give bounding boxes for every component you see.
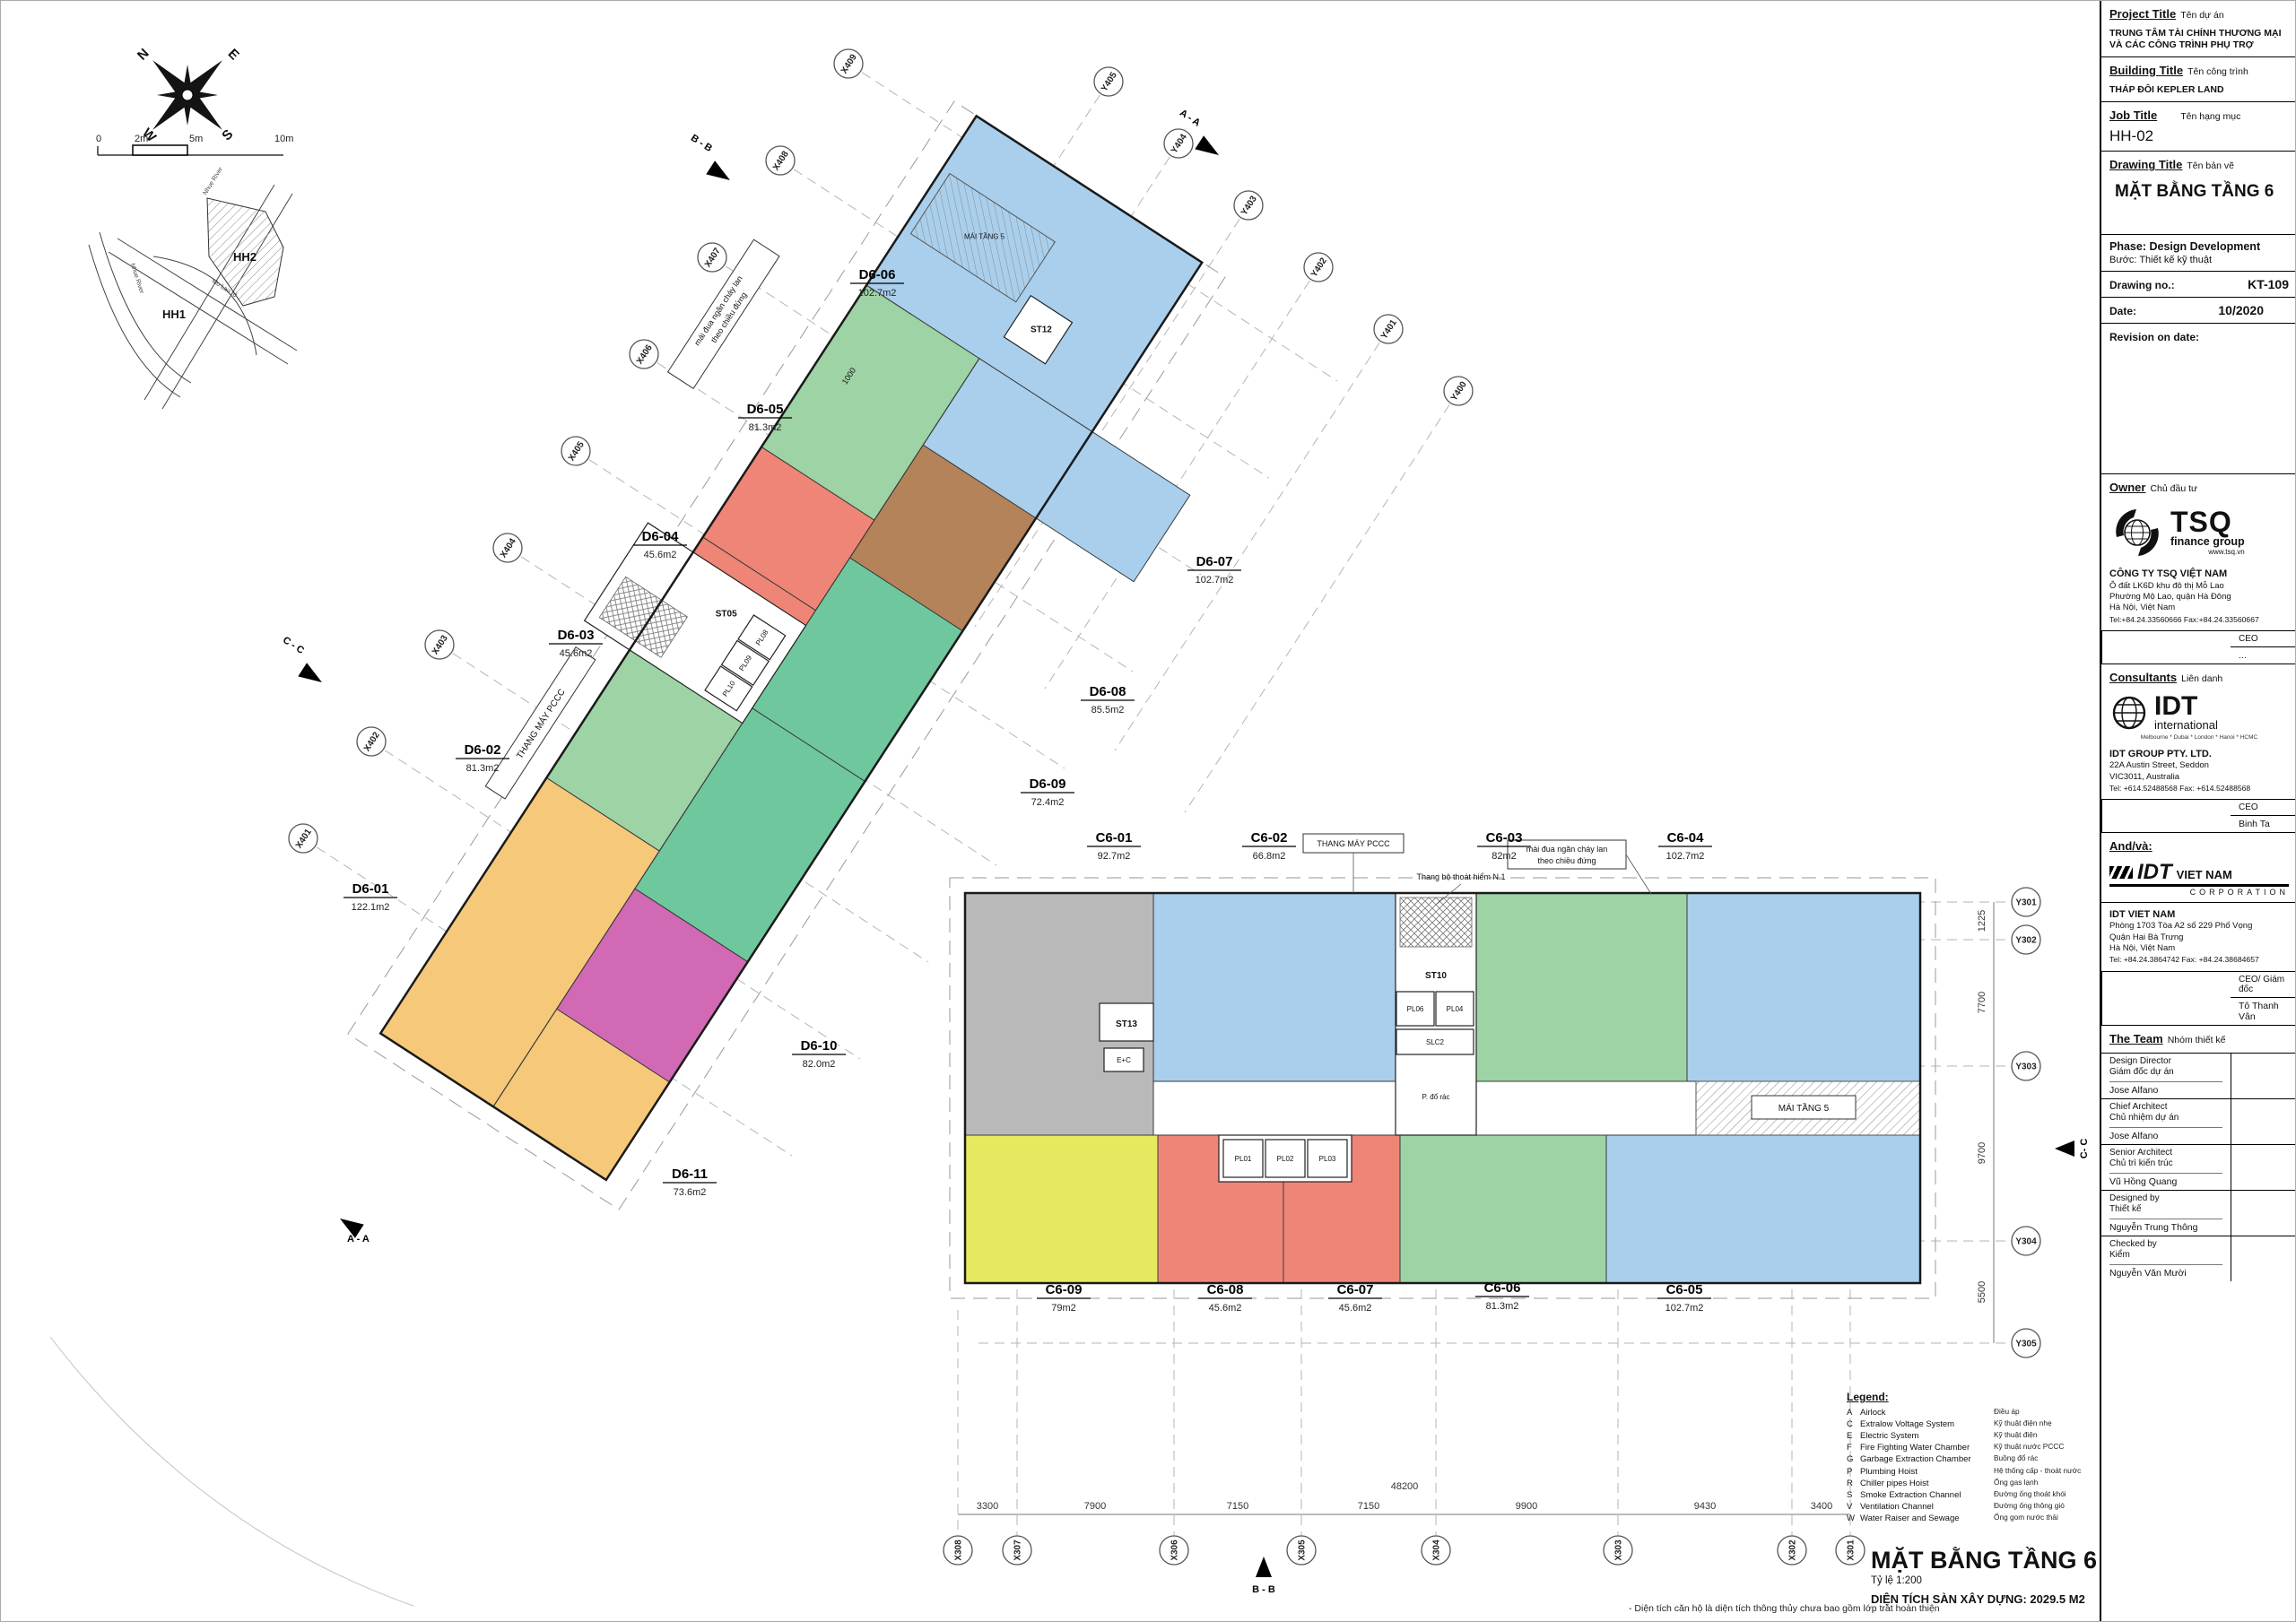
legend-vn: Hệ thống cấp - thoát nước — [1994, 1466, 2094, 1478]
scale-10m: 10m — [274, 134, 293, 144]
legend-vn: Buồng đổ rác — [1994, 1453, 2094, 1465]
grid-bubble-x307: X307 — [1003, 1536, 1031, 1565]
eave-note-c6-line2: theo chiều đứng — [1537, 856, 1596, 865]
unit-c6-05-region — [1606, 1135, 1920, 1283]
lift-label-pl04: PL04 — [1447, 1005, 1464, 1013]
grid-bubble-x306: X306 — [1160, 1536, 1188, 1565]
consultants-label-vn: Liên danh — [2181, 673, 2222, 684]
idt-vietnam-bars-icon — [2109, 866, 2133, 879]
owner-label: Owner — [2109, 481, 2145, 494]
svg-text:C6-09: C6-09 — [1046, 1282, 1083, 1297]
unit-label-c6-08: C6-0845.6m2 — [1198, 1282, 1252, 1314]
legend-row: GGarbage Extraction ChamberBuồng đổ rác — [1847, 1453, 2094, 1465]
lift-label-slc2: SLC2 — [1426, 1038, 1445, 1046]
job-title-label: Job Title — [2109, 108, 2157, 122]
team-role-en: Designed by — [2109, 1193, 2160, 1203]
grid-bubble-y400: Y400 — [1444, 377, 1473, 405]
svg-text:C- C: C- C — [2079, 1139, 2090, 1159]
team-role-vn: Chủ nhiệm dự án — [2109, 1113, 2179, 1123]
scale-0: 0 — [96, 134, 101, 144]
legend-key: W — [1847, 1513, 1860, 1524]
legend-vn: Ống gas lạnh — [1994, 1478, 2094, 1489]
unit-c6-03-region — [1476, 893, 1687, 1081]
river-label-1: Nhue River — [129, 263, 145, 295]
consultants-section: ConsultantsLiên danh IDT international M… — [2101, 664, 2296, 833]
drawing-no-value: KT-109 — [2248, 277, 2289, 291]
idt-vietnam-ceo-value: Tô Thanh Vân — [2231, 998, 2296, 1025]
building-title-label: Building Title — [2109, 64, 2183, 77]
project-title-label-vn: Tên dự án — [2180, 10, 2223, 21]
compass-n: N — [135, 46, 152, 64]
svg-text:D6-02: D6-02 — [465, 742, 501, 758]
idt-cities: Melbourne * Dubai * London * Hanoi * HCM… — [2109, 734, 2289, 741]
grid-bubble-x301: X301 — [1836, 1536, 1865, 1565]
project-title-section: Project TitleTên dự án TRUNG TÂM TÀI CHÍ… — [2101, 1, 2296, 57]
unit-label-d6-09: D6-0972.4m2 — [1021, 776, 1074, 808]
svg-text:102.7m2: 102.7m2 — [1196, 575, 1234, 585]
dim-bottom-2: 7900 — [1084, 1501, 1106, 1512]
svg-text:A - A: A - A — [347, 1234, 370, 1245]
team-role-en: Checked by — [2109, 1239, 2157, 1249]
revision-section: Revision on date: — [2101, 324, 2296, 474]
team-role-vn: Thiết kế — [2109, 1204, 2142, 1214]
team-role-vn: Giám đốc dự án — [2109, 1067, 2174, 1077]
legend-row: PPlumbing HoistHệ thống cấp - thoát nước — [1847, 1466, 2094, 1478]
floor-plan-svg: ST05 PL10 PL09 PL08 THANG MÁY PCCC ST12 … — [1, 1, 2100, 1622]
team-name: Jose Alfano — [2109, 1082, 2222, 1096]
location-map: HH2 HH1 Nhue River Nhue River Mo Lao rd — [89, 166, 297, 409]
stair-st10-hatch — [1400, 898, 1472, 947]
building-name: THÁP ĐÔI KEPLER LAND — [2109, 84, 2289, 96]
team-role-en: Senior Architect — [2109, 1148, 2172, 1158]
svg-text:C6-02: C6-02 — [1251, 830, 1288, 846]
idt-logo-sub: international — [2154, 718, 2218, 732]
grid-bubble-x406: X406 — [630, 340, 658, 369]
team-label-vn: Nhóm thiết kế — [2168, 1035, 2226, 1045]
owner-addr3: Hà Nội, Việt Nam — [2109, 603, 2289, 613]
team-role-en: Design Director — [2109, 1056, 2171, 1066]
svg-text:D6-05: D6-05 — [747, 402, 784, 417]
plan-canvas: ST05 PL10 PL09 PL08 THANG MÁY PCCC ST12 … — [1, 1, 2100, 1622]
grid-bubble-y405: Y405 — [1094, 67, 1123, 96]
dim-right-1: 1225 — [1977, 910, 1987, 932]
svg-text:D6-11: D6-11 — [672, 1167, 708, 1182]
legend: Legend: AAirlockĐiều áp CExtralow Voltag… — [1847, 1391, 2094, 1524]
svg-text:Y302: Y302 — [2015, 936, 2037, 946]
legend-vn: Kỹ thuật điện — [1994, 1430, 2094, 1442]
roof-label-c6: MÁI TẦNG 5 — [1779, 1102, 1830, 1114]
drawing-title-label-vn: Tên bản vẽ — [2187, 160, 2234, 171]
unit-label-c6-06: C6-0681.3m2 — [1475, 1280, 1529, 1312]
svg-text:D6-01: D6-01 — [352, 881, 389, 897]
legend-row: RChiller pipes HoistỐng gas lạnh — [1847, 1478, 2094, 1489]
svg-text:81.3m2: 81.3m2 — [1486, 1301, 1519, 1312]
consultants-addr1: 22A Austin Street, Seddon — [2109, 760, 2289, 771]
building-title-section: Building TitleTên công trình THÁP ĐÔI KE… — [2101, 57, 2296, 102]
dim-bottom-4: 7150 — [1358, 1501, 1379, 1512]
grid-bubble-y302: Y302 — [2012, 925, 2040, 954]
grid-bubble-x407: X407 — [698, 243, 726, 272]
idt-globe-icon — [2109, 693, 2149, 733]
legend-vn: Điều áp — [1994, 1407, 2094, 1418]
svg-text:82.0m2: 82.0m2 — [803, 1059, 836, 1070]
tsq-logo: TSQ finance group www.tsq.vn — [2109, 505, 2289, 560]
legend-row: CExtralow Voltage SystemKỹ thuật điện nh… — [1847, 1418, 2094, 1430]
hh2-label: HH2 — [233, 250, 257, 264]
svg-text:79m2: 79m2 — [1051, 1303, 1076, 1314]
tsq-logo-web: www.tsq.vn — [2170, 548, 2245, 556]
drawing-no-label: Drawing no.: — [2109, 279, 2175, 291]
svg-text:B - B: B - B — [689, 133, 714, 154]
dim-bottom-7: 3400 — [1811, 1501, 1832, 1512]
svg-text:X301: X301 — [1847, 1540, 1857, 1561]
consultants-label: Consultants — [2109, 671, 2177, 684]
dim-bottom-total: 48200 — [1391, 1481, 1419, 1492]
team-name: Nguyễn Trung Thông — [2109, 1219, 2222, 1233]
building-title-label-vn: Tên công trình — [2187, 66, 2248, 77]
grid-bubble-x401: X401 — [289, 824, 317, 853]
idt-vietnam-addr2: Quận Hai Bà Trưng — [2109, 932, 2289, 943]
grid-bubble-y301: Y301 — [2012, 888, 2040, 916]
svg-text:72.4m2: 72.4m2 — [1031, 797, 1065, 808]
eave-note-c6-line1: mái đua ngăn cháy lan — [1526, 845, 1608, 854]
team-role-en: Chief Architect — [2109, 1102, 2167, 1112]
owner-ceo-value: ... — [2231, 647, 2296, 664]
project-name-line1: TRUNG TÂM TÀI CHÍNH THƯƠNG MẠI — [2109, 28, 2289, 39]
legend-key: P — [1847, 1466, 1860, 1478]
owner-label-vn: Chủ đầu tư — [2150, 483, 2197, 494]
grid-bubble-x405: X405 — [561, 437, 590, 465]
consultants-ceo-value: Binh Ta — [2231, 816, 2296, 832]
unit-label-d6-08: D6-0885.5m2 — [1081, 684, 1135, 716]
scale-5m: 5m — [189, 134, 203, 144]
phase-label: Phase: Design Development — [2109, 240, 2289, 253]
team-role-vn: Chủ trì kiến trúc — [2109, 1158, 2173, 1168]
legend-vn: Ống gom nước thải — [1994, 1513, 2094, 1524]
svg-text:102.7m2: 102.7m2 — [1665, 1303, 1704, 1314]
core-label-st10: ST10 — [1425, 971, 1447, 981]
grid-bubble-y303: Y303 — [2012, 1052, 2040, 1080]
drawing-title-label: Drawing Title — [2109, 158, 2182, 171]
tsq-logo-sub: finance group — [2170, 535, 2245, 548]
grid-bubble-y402: Y402 — [1304, 253, 1333, 282]
owner-ceo-label: CEO — [2231, 631, 2296, 647]
consultants-ceo-table: CEO Binh Ta — [2101, 799, 2296, 832]
grid-bubble-x404: X404 — [493, 533, 522, 562]
footer-note: - Diện tích căn hộ là diện tích thông th… — [1629, 1603, 1940, 1614]
svg-text:81.3m2: 81.3m2 — [466, 763, 500, 774]
grid-bubble-y401: Y401 — [1374, 315, 1403, 343]
river-label-2: Nhue River — [202, 166, 224, 196]
legend-en: Ventilation Channel — [1860, 1501, 1994, 1513]
idt-vietnam-addr3: Hà Nội, Việt Nam — [2109, 943, 2289, 954]
svg-text:Y303: Y303 — [2015, 1063, 2037, 1072]
team-name: Nguyễn Văn Mười — [2109, 1265, 2222, 1279]
phase-label-vn: Bước: Thiết kế kỹ thuật — [2109, 255, 2289, 265]
legend-en: Airlock — [1860, 1407, 1994, 1418]
owner-section: OwnerChủ đầu tư TSQ finance group www.ts… — [2101, 474, 2296, 664]
c6-wing: ST10 PL06 PL04 SLC2 P. đổ rác ST13 E+C P… — [965, 893, 1920, 1283]
svg-text:102.7m2: 102.7m2 — [1666, 851, 1705, 862]
lift-label-pl06: PL06 — [1407, 1005, 1424, 1013]
dim-right-2: 7700 — [1977, 992, 1987, 1013]
team-role-vn: Kiểm — [2109, 1250, 2130, 1260]
section-marker-c-right: C- C — [2055, 1139, 2090, 1159]
idt-vietnam-corp: CORPORATION — [2109, 888, 2289, 897]
svg-text:D6-03: D6-03 — [558, 628, 595, 643]
svg-text:X305: X305 — [1298, 1540, 1308, 1561]
svg-text:D6-07: D6-07 — [1196, 554, 1233, 569]
consultants-addr2: VIC3011, Australia — [2109, 772, 2289, 783]
legend-en: Smoke Extraction Channel — [1860, 1489, 1994, 1501]
svg-text:C6-08: C6-08 — [1207, 1282, 1244, 1297]
drawing-sheet: ST05 PL10 PL09 PL08 THANG MÁY PCCC ST12 … — [0, 0, 2296, 1622]
svg-text:73.6m2: 73.6m2 — [674, 1187, 707, 1198]
andva-label: And/và: — [2109, 839, 2152, 853]
date-section: Date: 10/2020 — [2101, 298, 2296, 324]
team-signature-cell — [2231, 1236, 2296, 1281]
compass-e: E — [225, 46, 242, 63]
unit-label-c6-01: C6-0192.7m2 — [1087, 830, 1141, 862]
svg-text:X303: X303 — [1614, 1540, 1624, 1561]
idt-vietnam-logo-text: IDT — [2137, 862, 2172, 883]
team-name: Jose Alfano — [2109, 1128, 2222, 1141]
svg-text:Y304: Y304 — [2015, 1237, 2037, 1247]
legend-key: V — [1847, 1501, 1860, 1513]
svg-text:X302: X302 — [1788, 1540, 1798, 1561]
phase-section: Phase: Design Development Bước: Thiết kế… — [2101, 235, 2296, 272]
svg-text:82m2: 82m2 — [1492, 851, 1517, 862]
owner-ceo-signature-cell — [2101, 631, 2231, 664]
team-section: The TeamNhóm thiết kế Design DirectorGiá… — [2101, 1026, 2296, 1622]
svg-text:C6-05: C6-05 — [1666, 1282, 1703, 1297]
drawing-no-section: Drawing no.: KT-109 — [2101, 272, 2296, 298]
legend-row: WWater Raiser and SewageỐng gom nước thả… — [1847, 1513, 2094, 1524]
legend-vn: Đường ống thông gió — [1994, 1501, 2094, 1513]
dim-bottom-3: 7150 — [1227, 1501, 1248, 1512]
idt-vietnam-company: IDT VIET NAM — [2109, 908, 2289, 921]
legend-key: F — [1847, 1442, 1860, 1453]
svg-text:Y305: Y305 — [2015, 1340, 2037, 1349]
grid-bubble-x409: X409 — [834, 49, 863, 78]
legend-title: Legend: — [1847, 1391, 2094, 1403]
legend-row: FFire Fighting Water ChamberKỹ thuật nướ… — [1847, 1442, 2094, 1453]
legend-key: G — [1847, 1453, 1860, 1465]
idt-vietnam-ceo-table: CEO/ Giám đốc Tô Thanh Vân — [2101, 971, 2296, 1025]
grid-bubble-x303: X303 — [1604, 1536, 1632, 1565]
legend-vn: Kỹ thuật nước PCCC — [1994, 1442, 2094, 1453]
core-label-st12: ST12 — [1031, 325, 1052, 335]
lift-label-pl02: PL02 — [1277, 1155, 1294, 1163]
team-row-checked-by: Checked byKiểm Nguyễn Văn Mười — [2101, 1236, 2296, 1281]
svg-text:B - B: B - B — [1252, 1584, 1275, 1595]
legend-en: Water Raiser and Sewage — [1860, 1513, 1994, 1524]
project-name-line2: VÀ CÁC CÔNG TRÌNH PHỤ TRỢ — [2109, 39, 2289, 51]
section-marker-a-bottom: A - A — [330, 1211, 377, 1254]
unit-c6-06-region — [1400, 1135, 1606, 1283]
team-signature-cell — [2231, 1145, 2296, 1190]
consultants-ceo-label: CEO — [2231, 800, 2296, 816]
svg-text:X307: X307 — [1013, 1540, 1023, 1561]
section-marker-b-top: B - B — [679, 133, 741, 187]
revision-label: Revision on date: — [2109, 331, 2199, 343]
svg-text:102.7m2: 102.7m2 — [858, 288, 897, 299]
drawing-title-value: MẶT BẰNG TẦNG 6 — [2115, 182, 2289, 202]
dim-right-3: 9700 — [1977, 1142, 1987, 1164]
team-row-senior-architect: Senior ArchitectChủ trì kiến trúc Vũ Hồn… — [2101, 1144, 2296, 1190]
owner-addr2: Phường Mộ Lao, quận Hà Đông — [2109, 592, 2289, 603]
grid-bubble-y304: Y304 — [2012, 1227, 2040, 1255]
idt-vietnam-logo: IDT VIET NAM — [2109, 862, 2289, 887]
team-row-chief-architect: Chief ArchitectChủ nhiệm dự án Jose Alfa… — [2101, 1098, 2296, 1144]
idt-vietnam-addr1: Phòng 1703 Tòa A2 số 229 Phố Vọng — [2109, 921, 2289, 932]
dim-right-4: 5500 — [1977, 1281, 1987, 1303]
eave-note-c6: mái đua ngăn cháy lan theo chiều đứng — [1508, 840, 1651, 894]
legend-en: Extralow Voltage System — [1860, 1418, 1994, 1430]
legend-en: Fire Fighting Water Chamber — [1860, 1442, 1994, 1453]
title-block: Project TitleTên dự án TRUNG TÂM TÀI CHÍ… — [2100, 1, 2296, 1622]
owner-addr1: Ô đất LK6D khu đô thị Mỗ Lao — [2109, 581, 2289, 592]
andva-section: And/và: IDT VIET NAM CORPORATION — [2101, 833, 2296, 903]
team-name: Vũ Hồng Quang — [2109, 1174, 2222, 1187]
date-label: Date: — [2109, 305, 2136, 317]
lift-label-pl03: PL03 — [1319, 1155, 1336, 1163]
legend-key: S — [1847, 1489, 1860, 1501]
unit-label-d6-07: D6-07102.7m2 — [1187, 554, 1241, 585]
legend-en: Chiller pipes Hoist — [1860, 1478, 1994, 1489]
legend-key: R — [1847, 1478, 1860, 1489]
svg-text:85.5m2: 85.5m2 — [1091, 705, 1125, 716]
team-signature-cell — [2231, 1054, 2296, 1098]
legend-en: Plumbing Hoist — [1860, 1466, 1994, 1478]
unit-label-c6-05: C6-05102.7m2 — [1657, 1282, 1711, 1314]
unit-c6-04-region — [1687, 893, 1920, 1081]
unit-label-c6-04: C6-04102.7m2 — [1658, 830, 1712, 862]
legend-vn: Kỹ thuật điện nhẹ — [1994, 1418, 2094, 1430]
footer-title: MẶT BẰNG TẦNG 6 — [1871, 1547, 2097, 1574]
legend-row: SSmoke Extraction ChannelĐường ống thoát… — [1847, 1489, 2094, 1501]
unit-label-d6-10: D6-1082.0m2 — [792, 1038, 846, 1070]
section-marker-c-left: C - C — [271, 635, 333, 690]
svg-text:D6-04: D6-04 — [642, 529, 680, 544]
svg-text:92.7m2: 92.7m2 — [1098, 851, 1131, 862]
job-title-label-vn: Tên hạng mục — [2180, 111, 2240, 122]
owner-company: CÔNG TY TSQ VIỆT NAM — [2109, 568, 2289, 580]
legend-row: EElectric SystemKỹ thuật điện — [1847, 1430, 2094, 1442]
section-marker-b-bottom: B - B — [1252, 1557, 1275, 1595]
svg-text:D6-09: D6-09 — [1030, 776, 1066, 792]
idt-logo: IDT international — [2109, 693, 2289, 733]
svg-text:C - C: C - C — [281, 635, 306, 656]
escape-stair-note: Thang bộ thoát hiểm N.1 — [1416, 872, 1505, 881]
idt-vietnam-tel: Tel: +84.24.3864742 Fax: +84.24.38684657 — [2109, 955, 2289, 965]
grid-bubble-y305: Y305 — [2012, 1329, 2040, 1357]
grid-bubble-y403: Y403 — [1234, 191, 1263, 220]
svg-text:C6-03: C6-03 — [1486, 830, 1523, 846]
compass-s: S — [219, 126, 236, 143]
drawing-title-section: Drawing TitleTên bản vẽ MẶT BẰNG TẦNG 6 — [2101, 152, 2296, 235]
unit-label-c6-09: C6-0979m2 — [1037, 1282, 1091, 1314]
consultants-ceo-signature-cell — [2101, 800, 2231, 832]
svg-text:45.6m2: 45.6m2 — [1209, 1303, 1242, 1314]
fire-lift-label-c6: THANG MÁY PCCC — [1317, 839, 1390, 848]
grid-bubble-x305: X305 — [1287, 1536, 1316, 1565]
ec-label: E+C — [1117, 1056, 1131, 1064]
idt-logo-text: IDT — [2154, 694, 2218, 718]
legend-row: VVentilation ChannelĐường ống thông gió — [1847, 1501, 2094, 1513]
idt-vietnam-section: IDT VIET NAM Phòng 1703 Tòa A2 số 229 Ph… — [2101, 903, 2296, 1026]
grid-bubble-x302: X302 — [1778, 1536, 1806, 1565]
svg-text:C6-06: C6-06 — [1484, 1280, 1521, 1296]
team-row-design-director: Design DirectorGiám đốc dự án Jose Alfan… — [2101, 1053, 2296, 1098]
dim-bottom-1: 3300 — [977, 1501, 998, 1512]
idt-vietnam-ceo-signature-cell — [2101, 972, 2231, 1025]
grid-bubble-x403: X403 — [425, 630, 454, 659]
svg-text:122.1m2: 122.1m2 — [352, 902, 390, 913]
grid-bubble-x304: X304 — [1422, 1536, 1450, 1565]
grid-bubble-x408: X408 — [766, 146, 795, 175]
svg-text:81.3m2: 81.3m2 — [749, 422, 782, 433]
svg-text:C6-04: C6-04 — [1667, 830, 1705, 846]
svg-text:C6-01: C6-01 — [1096, 830, 1133, 846]
svg-text:X304: X304 — [1432, 1540, 1442, 1561]
tsq-logo-text: TSQ — [2170, 509, 2245, 535]
unit-label-c6-02: C6-0266.8m2 — [1242, 830, 1296, 862]
job-title-section: Job TitleTên hạng mục HH-02 — [2101, 102, 2296, 152]
dim-bottom-6: 9430 — [1694, 1501, 1716, 1512]
job-code: HH-02 — [2109, 127, 2289, 145]
roof-label-d6: MÁI TẦNG 5 — [964, 231, 1005, 240]
grid-bubble-y404: Y404 — [1164, 129, 1193, 158]
garbage-label: P. đổ rác — [1422, 1093, 1450, 1101]
svg-text:45.6m2: 45.6m2 — [644, 550, 677, 560]
dim-bottom-5: 9900 — [1516, 1501, 1537, 1512]
svg-text:D6-06: D6-06 — [859, 267, 896, 282]
scale-2m: 2m — [135, 134, 148, 144]
svg-text:X308: X308 — [954, 1540, 964, 1561]
idt-vietnam-logo-vn: VIET NAM — [2177, 868, 2232, 881]
legend-vn: Đường ống thoát khói — [1994, 1489, 2094, 1501]
unit-label-c6-07: C6-0745.6m2 — [1328, 1282, 1382, 1314]
team-row-designed-by: Designed byThiết kế Nguyễn Trung Thông — [2101, 1190, 2296, 1236]
unit-c6-02-region — [1153, 893, 1396, 1081]
svg-text:66.8m2: 66.8m2 — [1253, 851, 1286, 862]
svg-text:D6-08: D6-08 — [1090, 684, 1126, 699]
consultants-company: IDT GROUP PTY. LTD. — [2109, 748, 2289, 760]
hh1-label: HH1 — [162, 308, 186, 321]
unit-label-d6-01: D6-01122.1m2 — [344, 881, 397, 913]
date-value: 10/2020 — [2218, 303, 2264, 317]
footer-scale: Tỷ lệ 1:200 — [1871, 1575, 2097, 1586]
owner-ceo-table: CEO ... — [2101, 630, 2296, 664]
scale-bar: 0 2m 5m 10m — [96, 134, 293, 155]
site-boundary-arc — [50, 1337, 413, 1606]
lift-label-pl01: PL01 — [1235, 1155, 1252, 1163]
legend-row: AAirlockĐiều áp — [1847, 1407, 2094, 1418]
core-label-st05: ST05 — [716, 609, 737, 619]
svg-text:45.6m2: 45.6m2 — [560, 648, 593, 659]
unit-c6-09-region — [965, 1135, 1158, 1283]
core-label-st13: ST13 — [1116, 1019, 1137, 1029]
team-signature-cell — [2231, 1099, 2296, 1144]
svg-text:45.6m2: 45.6m2 — [1339, 1303, 1372, 1314]
grid-bubble-x308: X308 — [944, 1536, 972, 1565]
svg-text:D6-10: D6-10 — [801, 1038, 838, 1054]
idt-vietnam-ceo-label: CEO/ Giám đốc — [2231, 972, 2296, 998]
grid-bubble-x402: X402 — [357, 727, 386, 756]
svg-text:C6-07: C6-07 — [1337, 1282, 1374, 1297]
svg-text:Y301: Y301 — [2015, 898, 2037, 908]
